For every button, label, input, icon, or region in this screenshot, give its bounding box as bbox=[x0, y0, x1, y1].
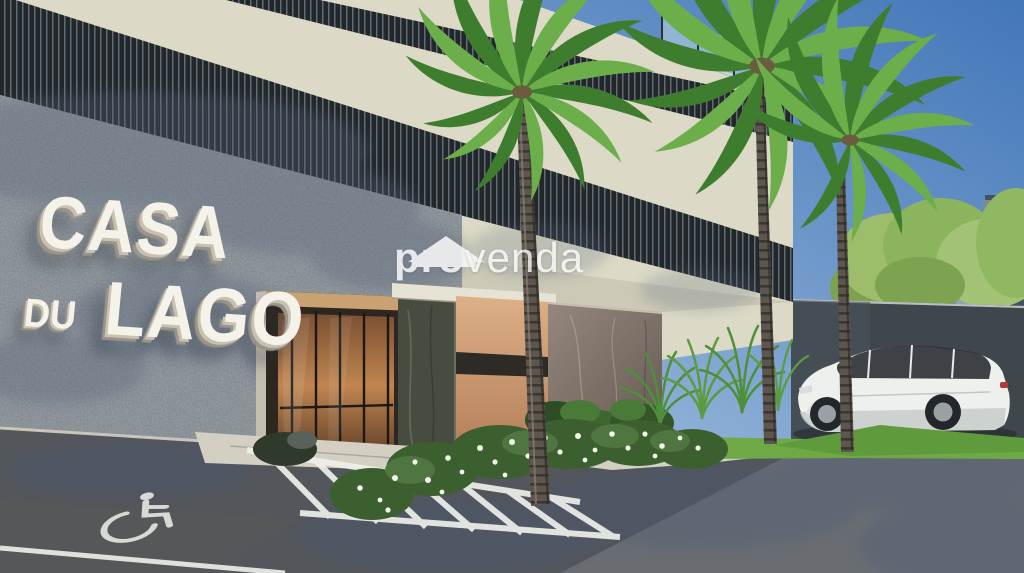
entrance-pillar bbox=[398, 298, 456, 456]
project-sign: CASA DU LAGO bbox=[20, 187, 326, 357]
watermark-light: venda bbox=[465, 234, 584, 281]
sign-word-du: DU bbox=[22, 295, 78, 342]
provenda-watermark: provenda bbox=[394, 234, 584, 282]
sign-word-casa: CASA bbox=[37, 188, 234, 268]
sign-word-lago: LAGO bbox=[102, 274, 308, 356]
suv-taillight bbox=[1000, 382, 1008, 388]
architectural-rendering: CASA DU LAGO provenda bbox=[0, 0, 1024, 573]
